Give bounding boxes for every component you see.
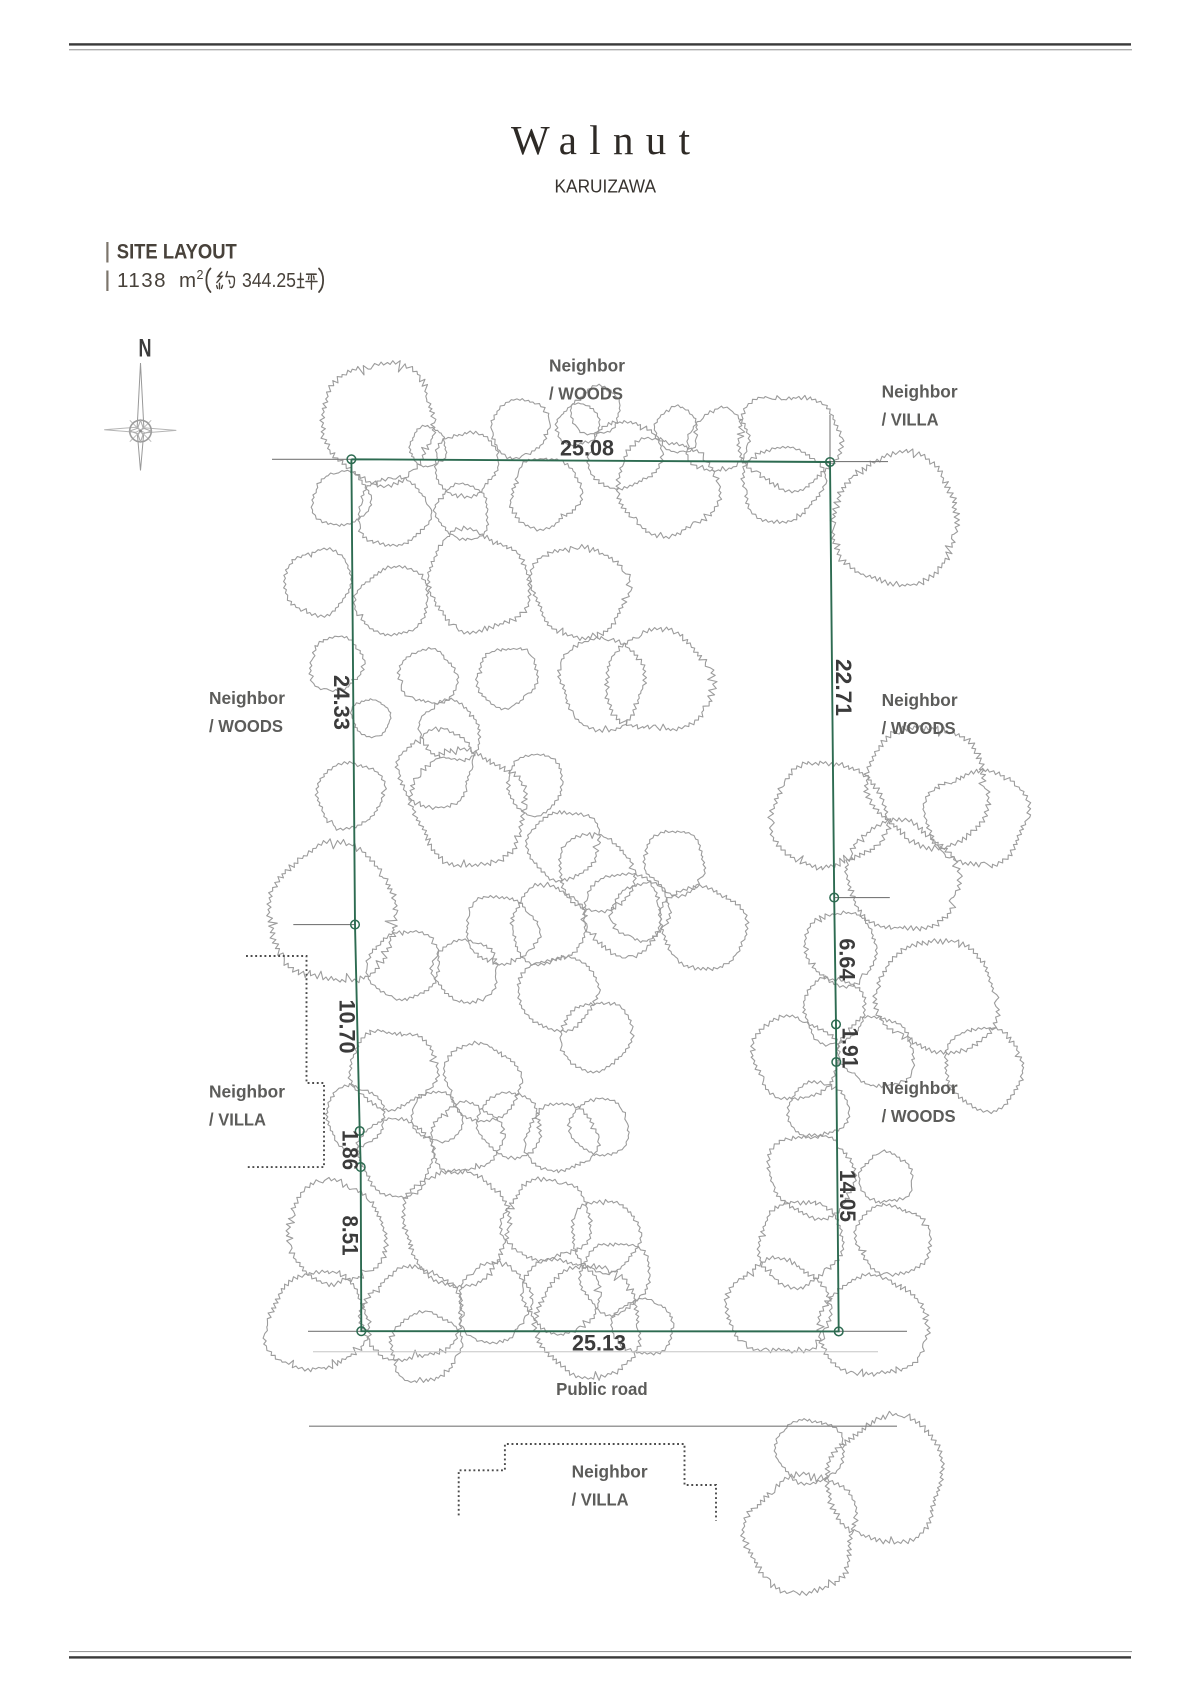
svg-text:/ WOODS: / WOODS — [882, 1106, 956, 1126]
svg-text:Neighbor: Neighbor — [572, 1462, 648, 1482]
svg-text:/ VILLA: / VILLA — [882, 409, 939, 429]
svg-text:Neighbor: Neighbor — [209, 1082, 285, 1102]
svg-text:m: m — [179, 269, 196, 292]
svg-text:6.64: 6.64 — [834, 938, 859, 981]
svg-text:25.08: 25.08 — [560, 436, 614, 461]
svg-text:/ WOODS: / WOODS — [549, 383, 623, 403]
svg-text:Neighbor: Neighbor — [882, 1078, 958, 1098]
svg-text:22.71: 22.71 — [831, 659, 856, 716]
svg-text:14.05: 14.05 — [835, 1170, 860, 1222]
svg-text:KARUIZAWA: KARUIZAWA — [555, 176, 657, 197]
svg-text:Neighbor: Neighbor — [882, 690, 958, 710]
svg-text:/ VILLA: / VILLA — [209, 1110, 266, 1130]
svg-text:/ VILLA: / VILLA — [572, 1490, 629, 1510]
svg-text:SITE LAYOUT: SITE LAYOUT — [117, 239, 237, 263]
svg-text:1.91: 1.91 — [837, 1027, 862, 1068]
svg-text:/ WOODS: / WOODS — [882, 718, 956, 738]
svg-text:344.25: 344.25 — [242, 269, 296, 292]
svg-text:24.33: 24.33 — [329, 675, 354, 730]
svg-text:Neighbor: Neighbor — [549, 355, 625, 375]
svg-text:N: N — [139, 335, 152, 363]
svg-text:25.13: 25.13 — [572, 1331, 626, 1356]
svg-text:10.70: 10.70 — [334, 1000, 359, 1054]
svg-text:Neighbor: Neighbor — [882, 381, 958, 401]
svg-text:1.86: 1.86 — [338, 1130, 363, 1170]
svg-text:Public road: Public road — [556, 1379, 648, 1399]
svg-text:8.51: 8.51 — [338, 1216, 363, 1256]
svg-text:2: 2 — [197, 268, 204, 282]
svg-text:1138: 1138 — [117, 269, 167, 292]
svg-text:/ WOODS: / WOODS — [209, 716, 283, 736]
svg-text:Neighbor: Neighbor — [209, 688, 285, 708]
